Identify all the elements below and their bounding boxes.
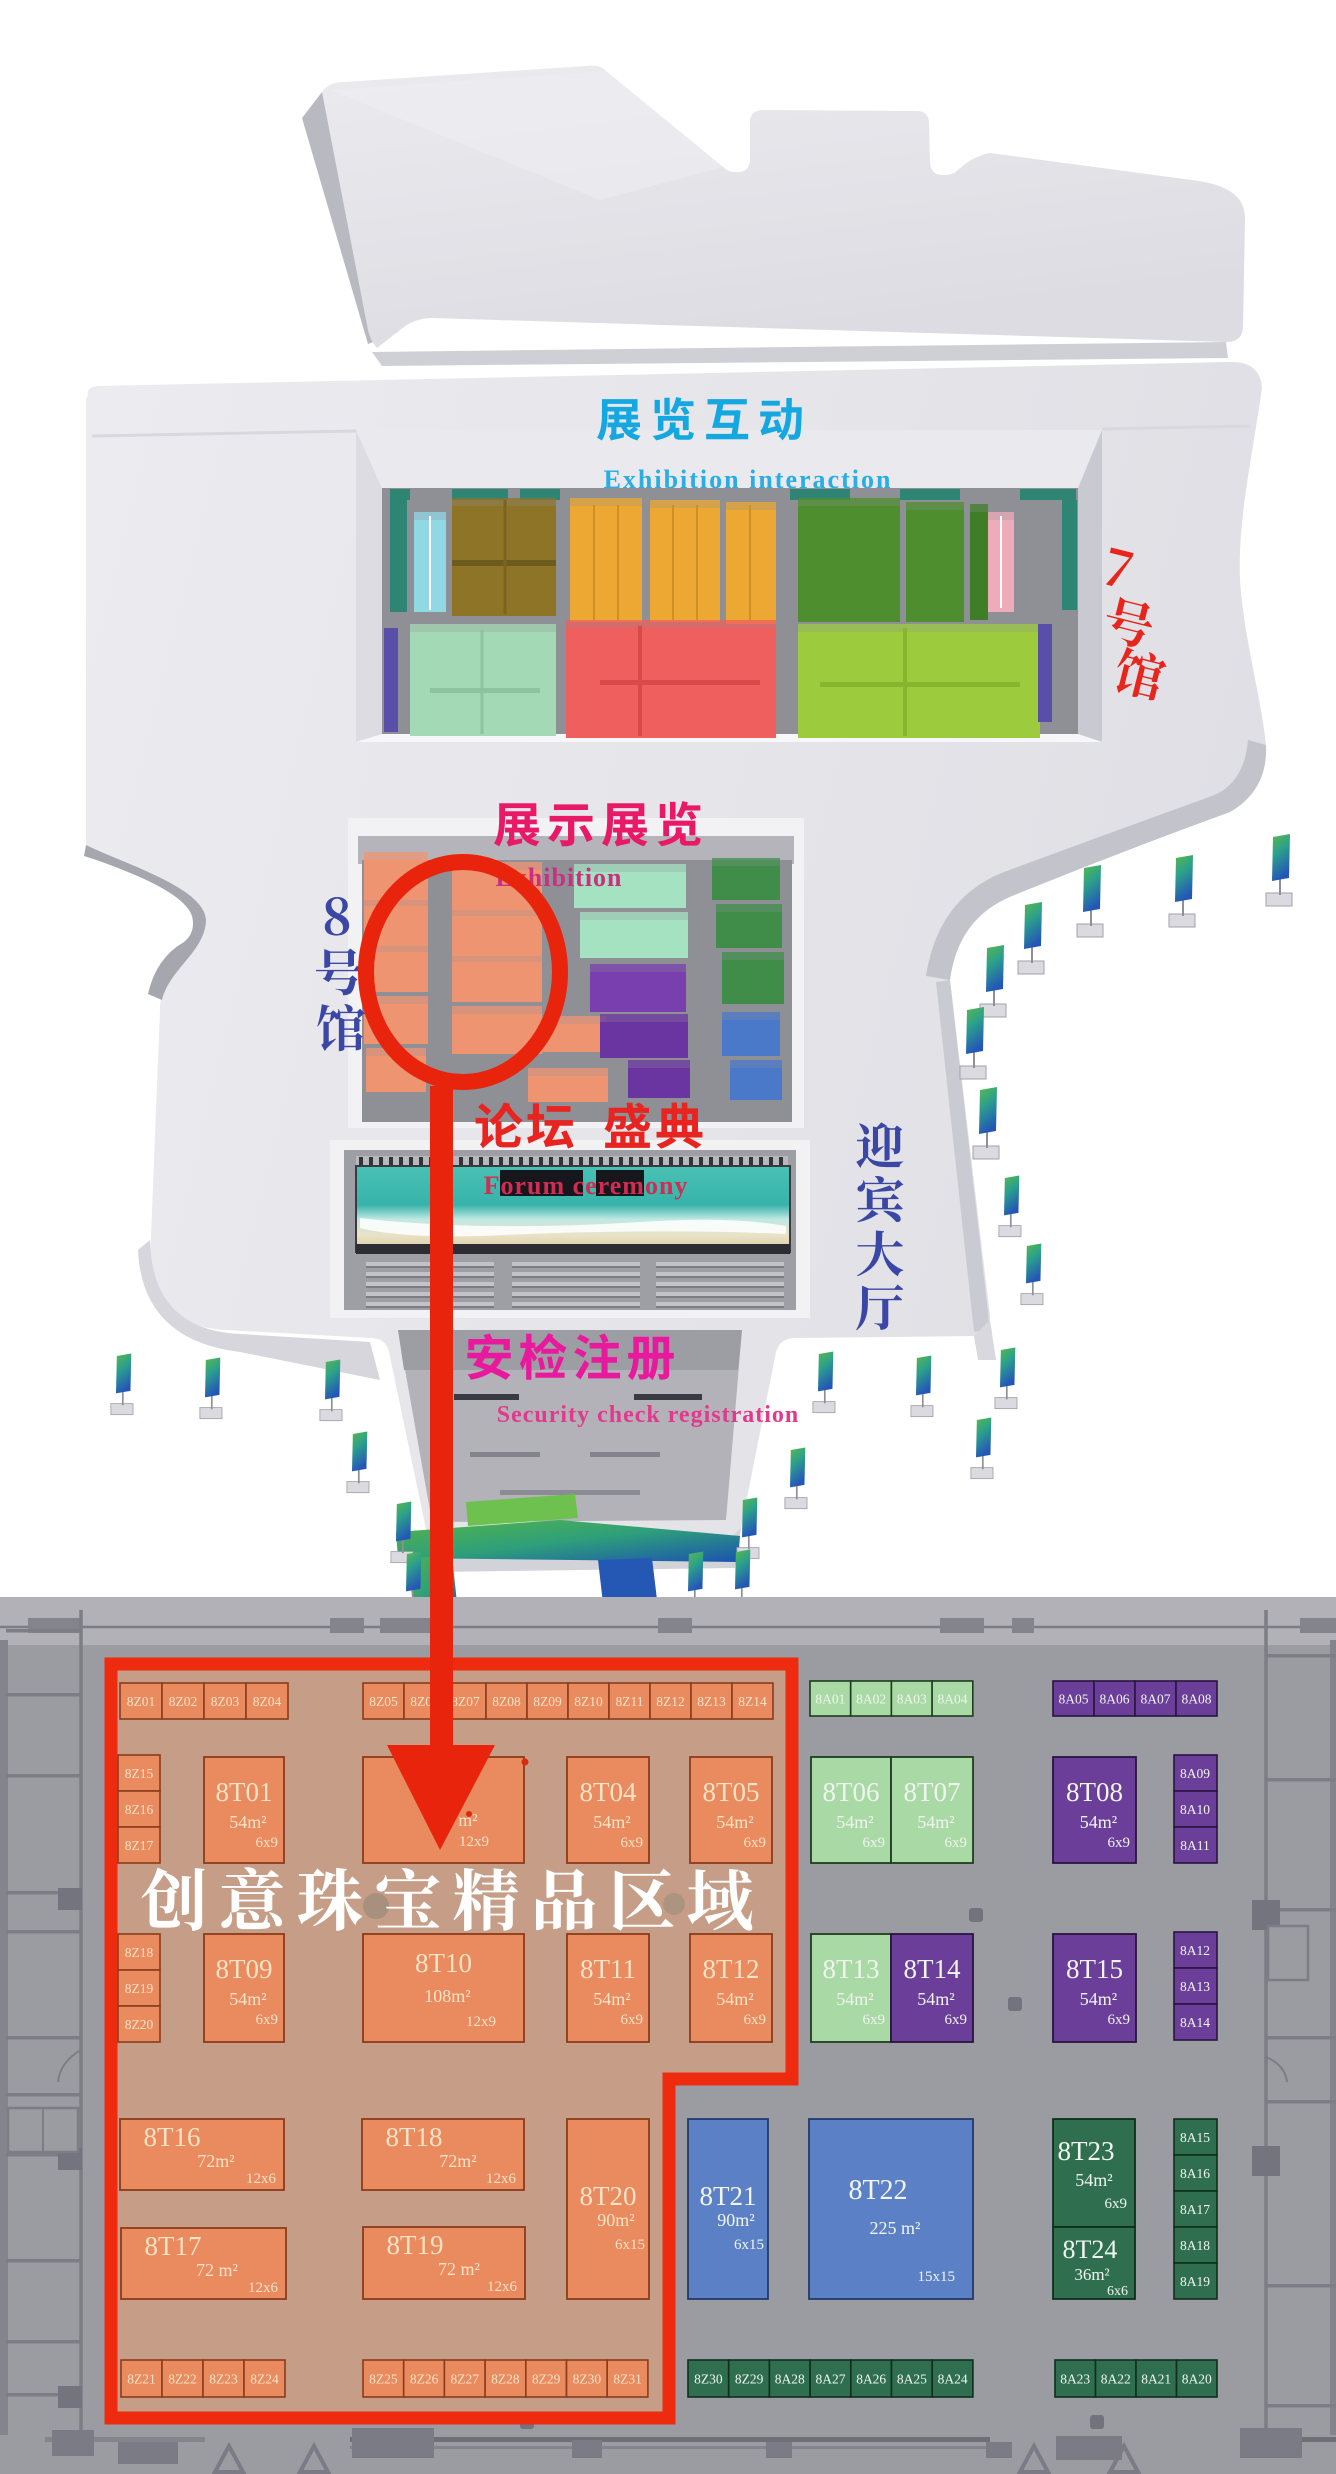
svg-text:8Z30: 8Z30 bbox=[573, 2372, 602, 2387]
svg-text:8A23: 8A23 bbox=[1060, 2372, 1090, 2387]
svg-text:72m²: 72m² bbox=[439, 2151, 476, 2171]
svg-text:12x6: 12x6 bbox=[248, 2280, 279, 2296]
svg-text:8A07: 8A07 bbox=[1141, 1692, 1171, 1707]
svg-text:8A11: 8A11 bbox=[1180, 1838, 1210, 1853]
svg-text:6x15: 6x15 bbox=[615, 2237, 645, 2253]
svg-text:8A27: 8A27 bbox=[816, 2372, 846, 2387]
svg-text:8Z14: 8Z14 bbox=[738, 1694, 767, 1709]
svg-text:8Z21: 8Z21 bbox=[127, 2372, 156, 2387]
svg-text:8T04: 8T04 bbox=[580, 1777, 637, 1807]
svg-text:54m²: 54m² bbox=[917, 1812, 954, 1832]
svg-text:8A24: 8A24 bbox=[938, 2372, 968, 2387]
svg-text:72 m²: 72 m² bbox=[196, 2260, 238, 2280]
svg-text:8Z29: 8Z29 bbox=[532, 2372, 561, 2387]
svg-text:54m²: 54m² bbox=[229, 1812, 266, 1832]
svg-text:8A22: 8A22 bbox=[1101, 2372, 1131, 2387]
svg-text:6x15: 6x15 bbox=[734, 2237, 764, 2253]
svg-text:6x9: 6x9 bbox=[256, 1835, 279, 1851]
svg-text:54m²: 54m² bbox=[229, 1989, 266, 2009]
svg-text:8A04: 8A04 bbox=[938, 1692, 968, 1707]
svg-text:8A20: 8A20 bbox=[1182, 2372, 1212, 2387]
svg-text:8Z27: 8Z27 bbox=[451, 2372, 480, 2387]
svg-text:6x9: 6x9 bbox=[621, 1835, 644, 1851]
svg-text:8A09: 8A09 bbox=[1180, 1766, 1210, 1781]
svg-text:8Z22: 8Z22 bbox=[168, 2372, 197, 2387]
svg-text:8A06: 8A06 bbox=[1100, 1692, 1130, 1707]
svg-text:72 m²: 72 m² bbox=[438, 2259, 480, 2279]
svg-text:8A10: 8A10 bbox=[1180, 1802, 1210, 1817]
svg-text:8Z10: 8Z10 bbox=[574, 1694, 603, 1709]
svg-text:6x9: 6x9 bbox=[256, 2012, 279, 2028]
svg-text:8A25: 8A25 bbox=[897, 2372, 927, 2387]
svg-text:6x9: 6x9 bbox=[945, 2012, 968, 2028]
svg-text:8A17: 8A17 bbox=[1180, 2202, 1210, 2217]
svg-text:8A14: 8A14 bbox=[1180, 2015, 1210, 2030]
svg-text:8T05: 8T05 bbox=[703, 1777, 760, 1807]
svg-text:12x6: 12x6 bbox=[487, 2279, 518, 2295]
svg-text:54m²: 54m² bbox=[917, 1989, 954, 2009]
svg-text:15x15: 15x15 bbox=[918, 2269, 956, 2285]
svg-text:8T20: 8T20 bbox=[580, 2181, 637, 2211]
svg-text:54m²: 54m² bbox=[1075, 2170, 1112, 2190]
svg-text:6x9: 6x9 bbox=[945, 1835, 968, 1851]
svg-text:8Z09: 8Z09 bbox=[533, 1694, 562, 1709]
svg-text:8Z04: 8Z04 bbox=[253, 1694, 282, 1709]
svg-text:90m²: 90m² bbox=[597, 2210, 634, 2230]
svg-text:90m²: 90m² bbox=[717, 2210, 754, 2230]
svg-text:8Z31: 8Z31 bbox=[613, 2372, 642, 2387]
svg-text:54m²: 54m² bbox=[836, 1812, 873, 1832]
svg-text:8A28: 8A28 bbox=[775, 2372, 805, 2387]
svg-text:8Z15: 8Z15 bbox=[125, 1766, 154, 1781]
svg-text:8T12: 8T12 bbox=[703, 1954, 760, 1984]
svg-text:8Z18: 8Z18 bbox=[125, 1945, 154, 1960]
svg-text:8T24: 8T24 bbox=[1063, 2235, 1118, 2264]
svg-text:8T19: 8T19 bbox=[387, 2230, 444, 2260]
svg-text:8T06: 8T06 bbox=[823, 1777, 880, 1807]
svg-text:8T11: 8T11 bbox=[580, 1954, 636, 1984]
svg-text:36m²: 36m² bbox=[1074, 2265, 1109, 2284]
svg-text:8Z20: 8Z20 bbox=[125, 2017, 154, 2032]
svg-text:8T13: 8T13 bbox=[823, 1954, 880, 1984]
svg-text:8T22: 8T22 bbox=[848, 2175, 907, 2206]
svg-text:8Z07: 8Z07 bbox=[451, 1694, 480, 1709]
svg-text:6x9: 6x9 bbox=[863, 2012, 886, 2028]
svg-text:72m²: 72m² bbox=[197, 2151, 234, 2171]
svg-text:6x9: 6x9 bbox=[863, 1835, 886, 1851]
svg-text:54m²: 54m² bbox=[716, 1989, 753, 2009]
svg-text:12x6: 12x6 bbox=[486, 2171, 517, 2187]
svg-text:6x9: 6x9 bbox=[744, 1835, 767, 1851]
svg-text:Security check registration: Security check registration bbox=[497, 1402, 800, 1428]
svg-text:54m²: 54m² bbox=[1080, 1989, 1117, 2009]
svg-text:8Z12: 8Z12 bbox=[656, 1694, 685, 1709]
svg-text:6x6: 6x6 bbox=[1107, 2284, 1128, 2299]
svg-text:8A19: 8A19 bbox=[1180, 2274, 1210, 2289]
svg-text:8Z11: 8Z11 bbox=[616, 1694, 644, 1709]
svg-text:8A12: 8A12 bbox=[1180, 1943, 1210, 1958]
svg-text:8Z02: 8Z02 bbox=[169, 1694, 198, 1709]
svg-text:8Z26: 8Z26 bbox=[410, 2372, 439, 2387]
svg-text:8A13: 8A13 bbox=[1180, 1979, 1210, 1994]
svg-text:8A18: 8A18 bbox=[1180, 2238, 1210, 2253]
svg-text:Forum ceremony: Forum ceremony bbox=[484, 1171, 689, 1200]
svg-text:8T16: 8T16 bbox=[144, 2122, 201, 2152]
svg-text:108m²: 108m² bbox=[424, 1986, 470, 2006]
svg-text:8Z25: 8Z25 bbox=[369, 2372, 398, 2387]
svg-text:54m²: 54m² bbox=[593, 1989, 630, 2009]
svg-text:8A05: 8A05 bbox=[1059, 1692, 1089, 1707]
svg-text:8Z16: 8Z16 bbox=[125, 1802, 154, 1817]
svg-text:12x6: 12x6 bbox=[246, 2171, 277, 2187]
svg-text:8Z03: 8Z03 bbox=[211, 1694, 240, 1709]
svg-text:12x9: 12x9 bbox=[459, 1834, 489, 1850]
svg-text:8A02: 8A02 bbox=[856, 1692, 886, 1707]
svg-text:12x9: 12x9 bbox=[466, 2014, 496, 2030]
svg-text:8T15: 8T15 bbox=[1066, 1954, 1123, 1984]
svg-text:8A01: 8A01 bbox=[815, 1692, 845, 1707]
svg-text:8A15: 8A15 bbox=[1180, 2130, 1210, 2145]
svg-text:8T18: 8T18 bbox=[386, 2122, 443, 2152]
svg-text:6x9: 6x9 bbox=[744, 2012, 767, 2028]
svg-text:8A21: 8A21 bbox=[1141, 2372, 1171, 2387]
svg-text:8Z05: 8Z05 bbox=[369, 1694, 398, 1709]
svg-text:8T08: 8T08 bbox=[1066, 1777, 1123, 1807]
svg-text:8Z28: 8Z28 bbox=[491, 2372, 520, 2387]
svg-text:54m²: 54m² bbox=[836, 1989, 873, 2009]
svg-text:54m²: 54m² bbox=[716, 1812, 753, 1832]
svg-text:8Z19: 8Z19 bbox=[125, 1981, 154, 1996]
svg-text:54m²: 54m² bbox=[593, 1812, 630, 1832]
svg-text:8T21: 8T21 bbox=[700, 2181, 757, 2211]
svg-text:8A16: 8A16 bbox=[1180, 2166, 1210, 2181]
svg-text:8Z30: 8Z30 bbox=[694, 2372, 723, 2387]
svg-text:6x9: 6x9 bbox=[1105, 2196, 1128, 2212]
svg-text:54m²: 54m² bbox=[1080, 1812, 1117, 1832]
svg-text:225 m²: 225 m² bbox=[870, 2218, 921, 2238]
svg-text:8T10: 8T10 bbox=[415, 1948, 472, 1978]
svg-text:8T14: 8T14 bbox=[904, 1954, 961, 1984]
svg-text:8Z17: 8Z17 bbox=[125, 1838, 154, 1853]
svg-text:8A26: 8A26 bbox=[856, 2372, 886, 2387]
svg-text:8T23: 8T23 bbox=[1058, 2136, 1115, 2166]
svg-text:8T07: 8T07 bbox=[904, 1777, 961, 1807]
svg-text:8Z13: 8Z13 bbox=[697, 1694, 726, 1709]
svg-text:6x9: 6x9 bbox=[621, 2012, 644, 2028]
svg-text:8T09: 8T09 bbox=[216, 1954, 273, 1984]
svg-text:6x9: 6x9 bbox=[1108, 2012, 1131, 2028]
svg-text:8Z08: 8Z08 bbox=[492, 1694, 521, 1709]
svg-text:8Z23: 8Z23 bbox=[209, 2372, 238, 2387]
svg-text:8Z29: 8Z29 bbox=[735, 2372, 764, 2387]
svg-text:Exhibition interaction: Exhibition interaction bbox=[604, 465, 893, 494]
svg-text:8Z24: 8Z24 bbox=[250, 2372, 279, 2387]
svg-text:8Z01: 8Z01 bbox=[127, 1694, 156, 1709]
svg-text:8T17: 8T17 bbox=[145, 2231, 202, 2261]
svg-text:6x9: 6x9 bbox=[1108, 1835, 1131, 1851]
svg-text:8A03: 8A03 bbox=[897, 1692, 927, 1707]
svg-text:8T01: 8T01 bbox=[216, 1777, 273, 1807]
svg-text:8A08: 8A08 bbox=[1182, 1692, 1212, 1707]
